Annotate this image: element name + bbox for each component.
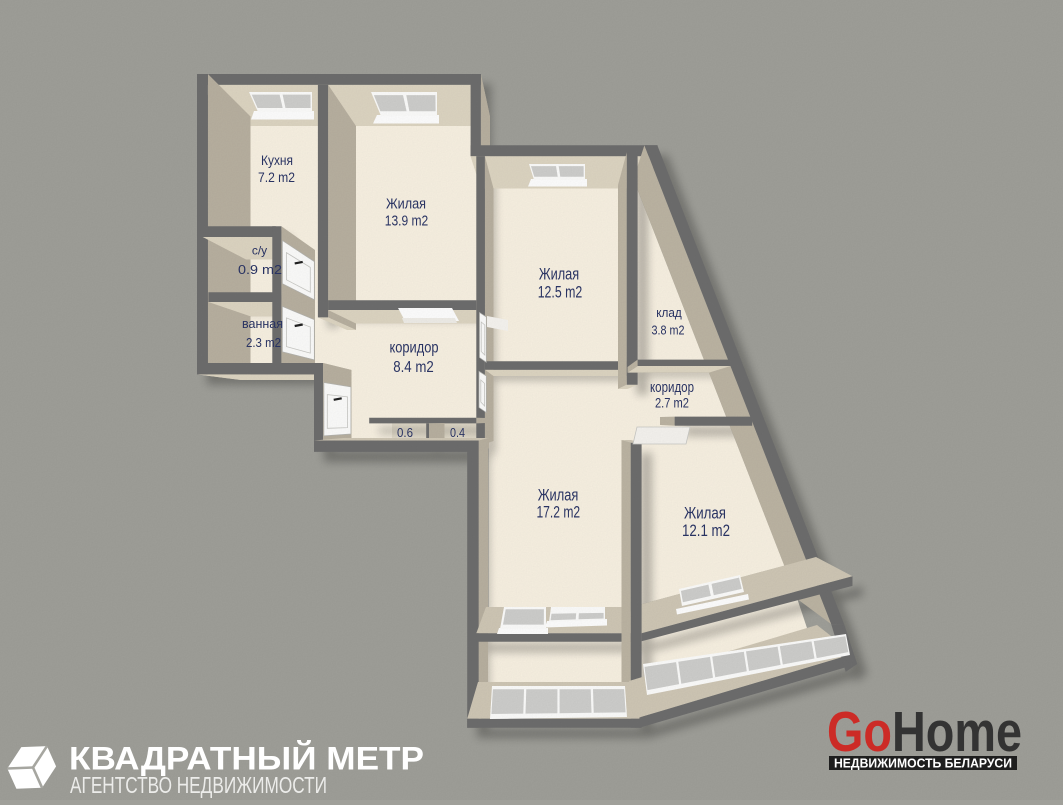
svg-text:КВАДРАТНЫЙ МЕТР: КВАДРАТНЫЙ МЕТР (69, 739, 424, 777)
svg-text:НЕДВИЖИМОСТЬ БЕЛАРУСИ: НЕДВИЖИМОСТЬ БЕЛАРУСИ (834, 757, 1012, 771)
svg-text:GoHome: GoHome (827, 700, 1022, 764)
svg-text:АГЕНТСТВО НЕДВИЖИМОСТИ: АГЕНТСТВО НЕДВИЖИМОСТИ (70, 772, 327, 798)
